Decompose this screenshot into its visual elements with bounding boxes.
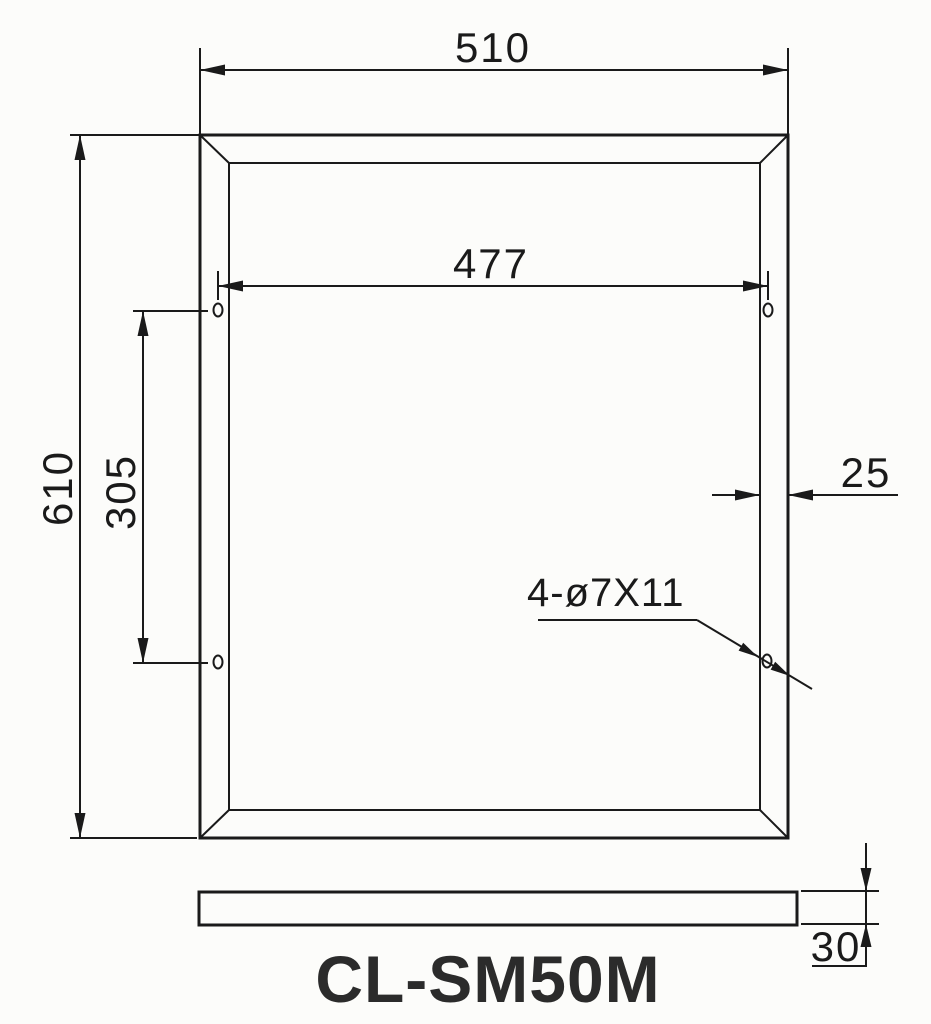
dim-outer-width-group: 510: [200, 24, 788, 135]
dim-frame-face-arrow-left: [735, 490, 760, 501]
dim-frame-face-label: 25: [841, 449, 892, 496]
dim-outer-height-arrow-bottom: [75, 813, 86, 838]
corner-miter-top-left: [200, 135, 229, 163]
corner-miter-bottom-right: [760, 810, 788, 838]
hole-callout-group: 4-ø7X11: [527, 571, 812, 689]
dim-side-thickness-arrow-bottom: [861, 924, 872, 947]
technical-drawing-canvas: 510 477 610 305: [0, 0, 931, 1024]
hole-callout-label: 4-ø7X11: [527, 571, 684, 615]
dim-hole-span-width-label: 477: [453, 240, 529, 287]
dim-outer-height-arrow-top: [75, 135, 86, 160]
dim-hole-span-height-group: 305: [97, 311, 208, 663]
dim-outer-width-arrow-right: [763, 65, 788, 76]
hole-callout-arrow-inner: [739, 643, 758, 657]
mounting-hole-top-right: [764, 304, 773, 317]
dim-hole-span-width-arrow-left: [218, 281, 243, 292]
side-view-bar: [199, 892, 797, 925]
dim-frame-face-group: 25: [712, 449, 898, 501]
dim-frame-face-arrow-right: [788, 490, 813, 501]
dim-outer-height-label: 610: [34, 450, 81, 526]
model-title: CL-SM50M: [315, 942, 660, 1016]
side-view-profile: [199, 892, 797, 925]
dim-hole-span-height-arrow-bottom: [138, 638, 149, 663]
dim-side-thickness-arrow-top: [861, 868, 872, 891]
corner-miter-bottom-left: [200, 810, 229, 838]
dim-outer-width-label: 510: [455, 24, 531, 71]
dim-outer-width-arrow-left: [200, 65, 225, 76]
dim-hole-span-height-label: 305: [97, 454, 144, 530]
corner-miter-top-right: [760, 135, 788, 163]
technical-drawing-page: 510 477 610 305: [0, 0, 931, 1024]
mounting-hole-top-left: [214, 304, 223, 317]
dim-side-thickness-label: 30: [811, 923, 862, 970]
dim-hole-span-height-arrow-top: [138, 311, 149, 336]
dim-hole-span-width-group: 477: [218, 240, 768, 300]
dim-hole-span-width-arrow-right: [743, 281, 768, 292]
dim-side-thickness-group: 30: [801, 843, 879, 970]
mounting-hole-bottom-left: [214, 656, 223, 669]
